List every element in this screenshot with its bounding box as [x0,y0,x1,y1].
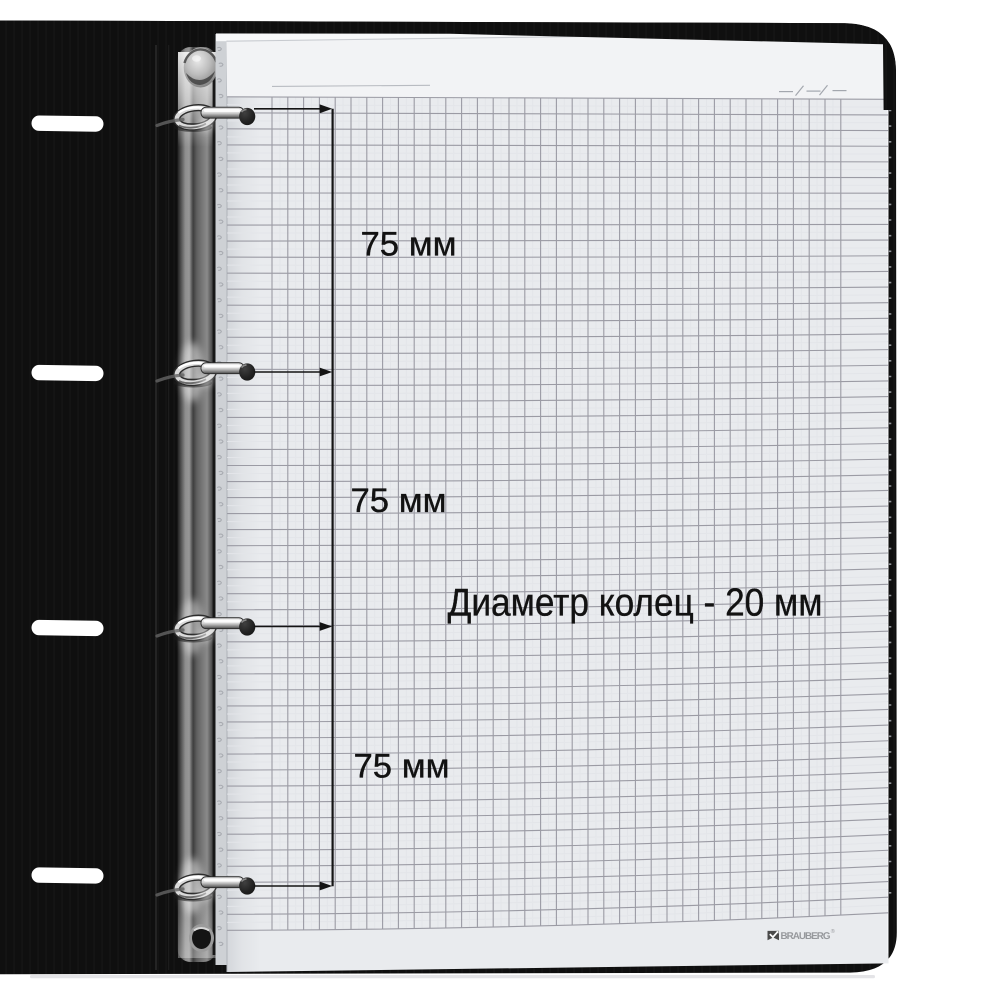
svg-text:BRAUBERG: BRAUBERG [781,931,831,942]
svg-text:75 мм: 75 мм [361,226,457,264]
svg-text:®: ® [831,928,835,935]
svg-text:Диаметр колец - 20 мм: Диаметр колец - 20 мм [448,582,823,625]
svg-text:75 мм: 75 мм [351,482,447,520]
svg-text:75 мм: 75 мм [354,748,450,786]
